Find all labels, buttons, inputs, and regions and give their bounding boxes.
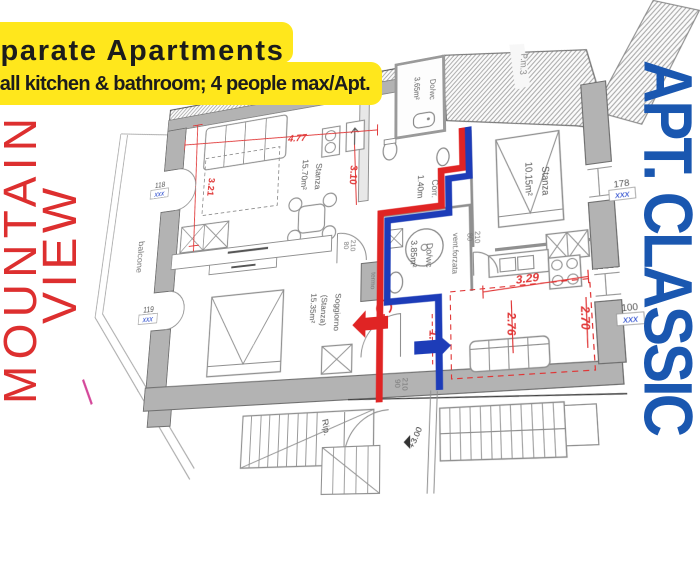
svg-text:Do/wc: Do/wc	[423, 243, 433, 269]
svg-text:210: 210	[472, 231, 480, 244]
svg-text:(Stanza): (Stanza)	[318, 295, 329, 327]
svg-text:10.15m²: 10.15m²	[523, 162, 533, 198]
svg-text:Soggiorno: Soggiorno	[331, 293, 342, 332]
svg-text:210: 210	[348, 240, 356, 252]
svg-text:xxx: xxx	[141, 315, 154, 325]
svg-text:P.m.3: P.m.3	[517, 53, 528, 75]
svg-text:1.40m: 1.40m	[415, 175, 425, 200]
svg-text:15.70m²: 15.70m²	[298, 159, 308, 191]
svg-text:2.70: 2.70	[578, 304, 593, 330]
svg-text:3.65m²: 3.65m²	[411, 76, 420, 100]
svg-text:3.21: 3.21	[205, 177, 217, 197]
svg-text:3.10: 3.10	[347, 165, 359, 186]
svg-text:15.35m²: 15.35m²	[307, 293, 318, 323]
svg-text:Do/wc: Do/wc	[427, 78, 436, 100]
svg-text:80: 80	[341, 241, 349, 249]
svg-text:balcone: balcone	[134, 241, 146, 274]
svg-text:Stanza: Stanza	[312, 163, 322, 190]
svg-text:termo: termo	[368, 272, 377, 290]
svg-text:3.85m²: 3.85m²	[408, 240, 418, 269]
svg-text:2.76: 2.76	[505, 311, 518, 337]
svg-text:+3.00: +3.00	[408, 425, 425, 450]
svg-text:Stanza: Stanza	[539, 166, 549, 196]
svg-text:Corr.: Corr.	[429, 179, 439, 198]
svg-text:210: 210	[400, 378, 409, 391]
svg-text:xxx: xxx	[153, 190, 165, 200]
svg-text:vent.forzata: vent.forzata	[450, 233, 459, 276]
svg-text:4.77: 4.77	[286, 132, 307, 144]
